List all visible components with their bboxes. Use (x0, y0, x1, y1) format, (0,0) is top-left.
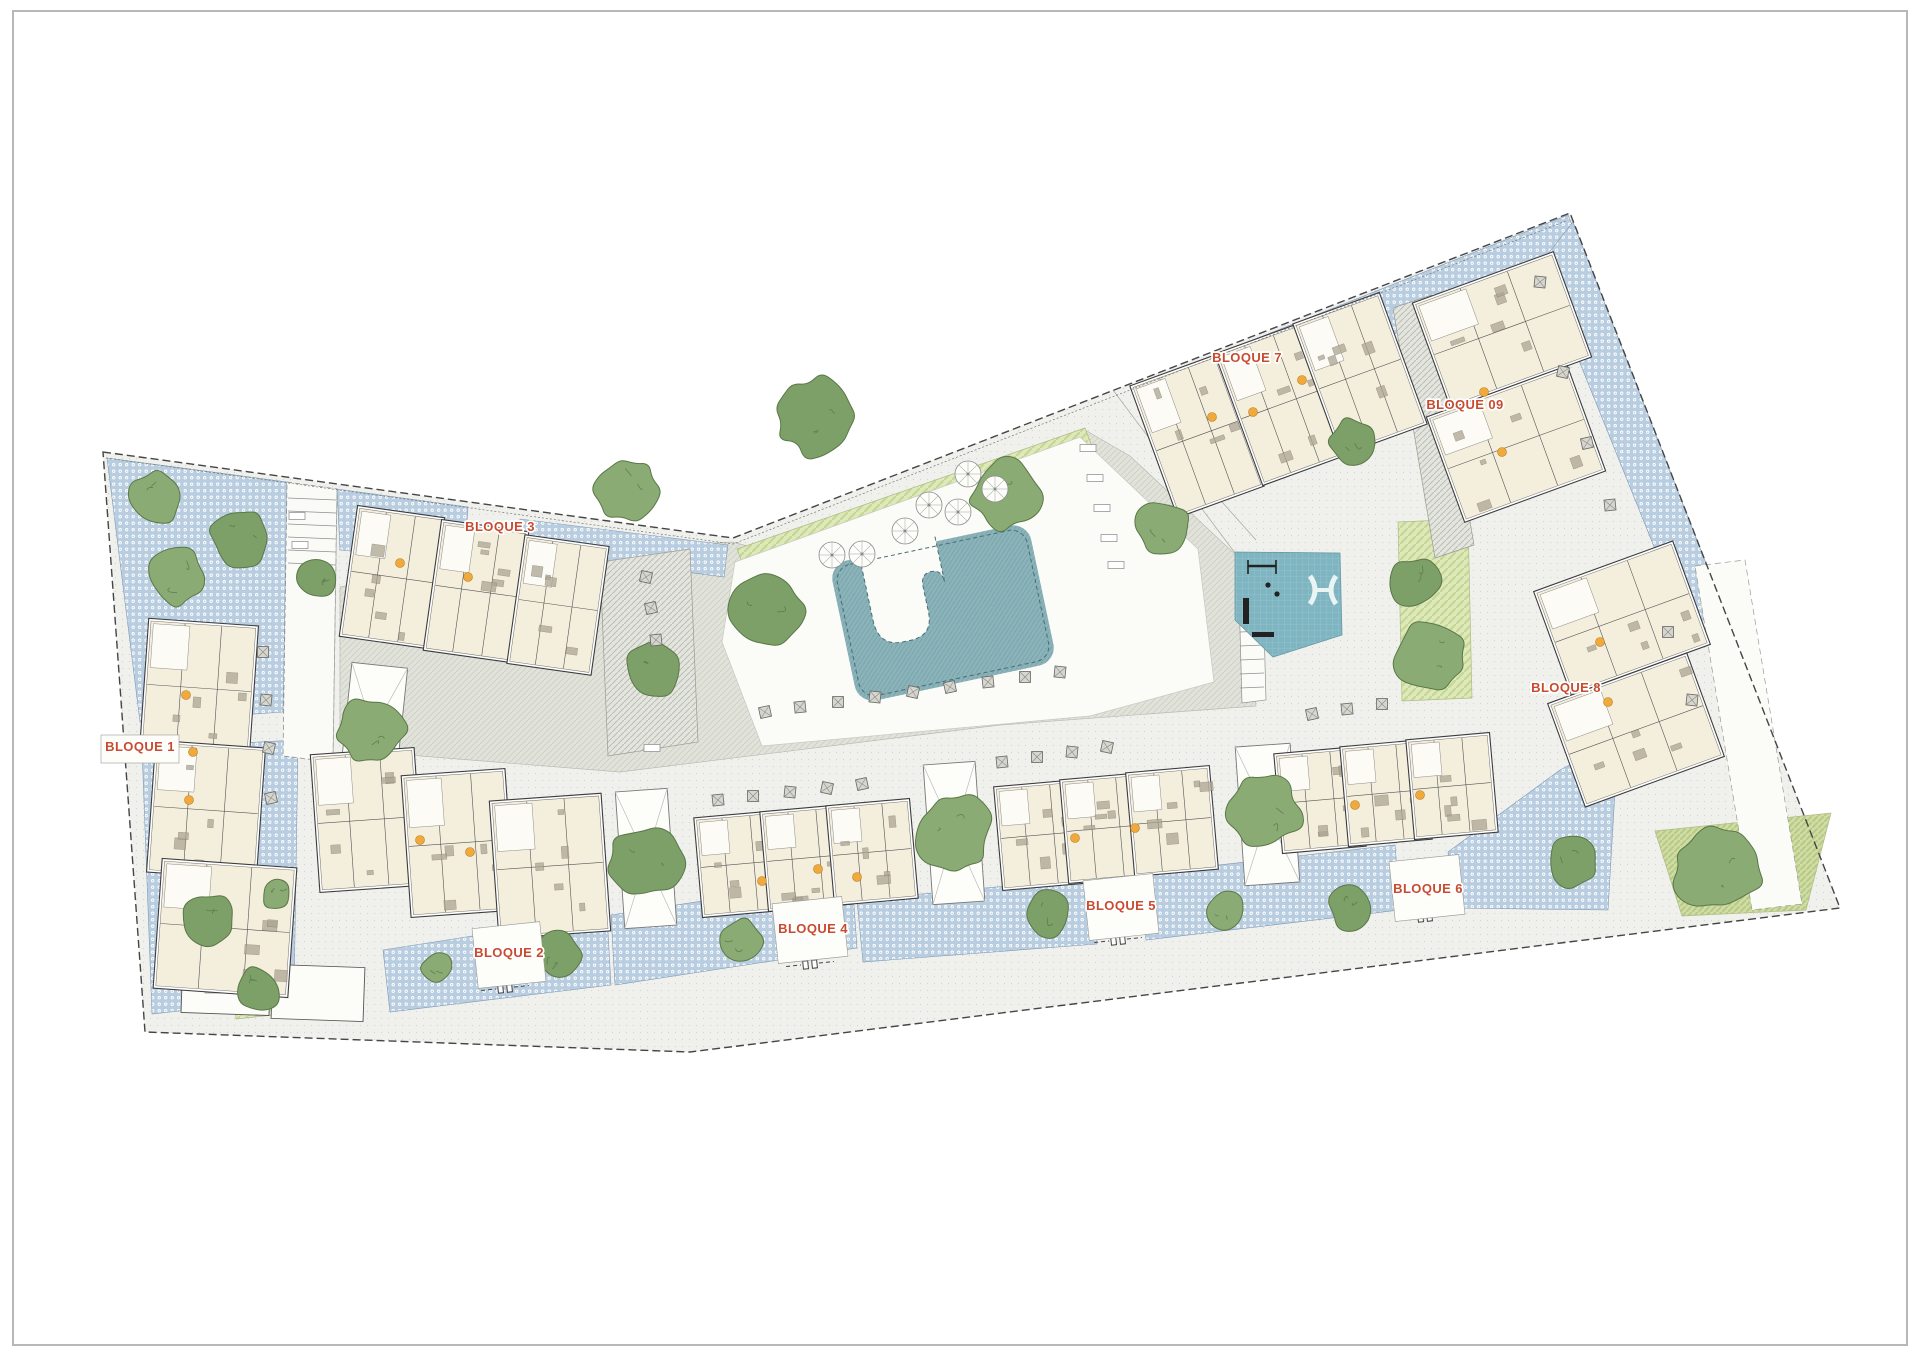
lounger-table (1032, 752, 1043, 763)
entry-marker (189, 748, 198, 757)
lounger-table (1305, 707, 1318, 720)
furniture (1040, 857, 1051, 869)
lounger-table (784, 786, 796, 798)
bench (289, 513, 305, 520)
furniture (444, 900, 457, 910)
parasol-pole (928, 504, 931, 507)
gate-post (812, 960, 818, 968)
lounger-table (943, 680, 956, 693)
furniture (730, 880, 739, 887)
furniture (331, 845, 341, 854)
room (699, 820, 730, 856)
furniture (1147, 819, 1162, 829)
parasol (955, 461, 981, 487)
tree-canopy (777, 375, 855, 459)
entry-marker (1604, 698, 1613, 707)
furniture (1395, 810, 1406, 821)
room (1131, 775, 1162, 812)
furniture (226, 672, 238, 683)
building-unit (489, 793, 610, 938)
entry-marker (182, 691, 191, 700)
lounger-table (748, 791, 759, 802)
furniture (889, 816, 897, 828)
entry-marker (1480, 388, 1489, 397)
lounger-table (1604, 499, 1616, 511)
page: BLOQUE 1 BLOQUE 2 BLOQUE 3 BLOQUE 4 BLOQ… (0, 0, 1920, 1356)
parasol (892, 518, 918, 544)
furniture (579, 903, 585, 911)
lounger-table (906, 685, 919, 698)
room (150, 624, 190, 670)
bench (1101, 535, 1117, 542)
bloque-6-label: BLOQUE 6 (1393, 881, 1463, 896)
entry-marker (466, 848, 475, 857)
furniture (545, 577, 557, 587)
furniture (884, 871, 890, 876)
furniture (1043, 809, 1053, 818)
entry-marker (396, 559, 405, 568)
parasol (982, 476, 1008, 502)
furniture (398, 632, 405, 641)
furniture (267, 920, 277, 928)
furniture (781, 892, 795, 900)
building-unit (826, 799, 918, 906)
parasol-pole (994, 488, 997, 491)
parasol-pole (831, 554, 834, 557)
bloque-7-label: BLOQUE 7 (1212, 350, 1282, 365)
furniture (367, 870, 374, 875)
lounger-table (1066, 746, 1078, 758)
entry-marker (814, 865, 823, 874)
building-unit (1126, 765, 1221, 876)
furniture (1199, 781, 1213, 791)
furniture (877, 875, 891, 885)
lounger-table (258, 647, 269, 658)
lounger-table (982, 676, 994, 688)
furniture (531, 565, 543, 577)
lounger-table (260, 694, 272, 706)
entry-marker (1249, 408, 1258, 417)
parasol (916, 492, 942, 518)
furniture (244, 944, 259, 955)
lounger-table (758, 705, 771, 718)
furniture (1361, 827, 1369, 837)
furniture (274, 970, 288, 982)
gate-post (803, 961, 809, 969)
bloque-2-label: BLOQUE 2 (474, 945, 544, 960)
bench (1094, 505, 1110, 512)
lounger-table (1686, 694, 1698, 706)
furniture (480, 844, 487, 854)
furniture (209, 733, 217, 738)
furniture (375, 612, 387, 620)
lounger-table (712, 794, 724, 806)
lounger-table (1341, 703, 1353, 715)
bench (644, 745, 660, 752)
room (765, 814, 796, 850)
lounger-table (1556, 365, 1569, 378)
bloque-1-label: BLOQUE 1 (105, 739, 175, 754)
spring-toy (1274, 591, 1279, 596)
furniture (714, 862, 721, 867)
furniture (238, 693, 246, 701)
parasol (945, 499, 971, 525)
entry-marker (1208, 413, 1217, 422)
room (316, 757, 354, 805)
furniture (561, 846, 569, 858)
bloque-3-label: BLOQUE 3 (465, 519, 535, 534)
furniture (173, 715, 180, 722)
parasol-pole (957, 511, 960, 514)
parasol-pole (904, 530, 907, 533)
lounger-table (1020, 672, 1031, 683)
entry-marker (1071, 834, 1080, 843)
parasol-pole (967, 473, 970, 476)
furniture (566, 647, 578, 655)
furniture (480, 550, 489, 555)
tree-canopy (608, 828, 686, 894)
furniture (862, 848, 869, 859)
furniture (554, 884, 563, 891)
building-unit (507, 535, 609, 676)
lounger-table (1534, 276, 1546, 288)
room (407, 778, 445, 828)
entry-marker (1498, 448, 1507, 457)
building-unit (1406, 733, 1498, 840)
entry-marker (758, 877, 767, 886)
furniture (535, 863, 544, 871)
furniture (1095, 814, 1107, 819)
lounger-table (820, 781, 833, 794)
furniture (1374, 795, 1389, 807)
entry-marker (1351, 801, 1360, 810)
furniture (841, 841, 850, 846)
furniture (1472, 819, 1487, 830)
furniture (1016, 839, 1028, 846)
lounger-table (996, 756, 1008, 768)
bench (1087, 475, 1103, 482)
bloque-4-label: BLOQUE 4 (778, 921, 848, 936)
furniture (207, 819, 213, 828)
furniture (432, 854, 447, 860)
room (1345, 749, 1376, 785)
lounger-table (1580, 436, 1593, 449)
furniture (1084, 825, 1095, 830)
bloque-8-label: BLOQUE 8 (1531, 680, 1601, 695)
lounger-table (639, 570, 652, 583)
lounger-table (1663, 627, 1674, 638)
entry-marker (1596, 638, 1605, 647)
furniture (481, 581, 497, 592)
room (495, 803, 535, 851)
bench (292, 542, 308, 549)
entry-marker (853, 873, 862, 882)
entry-marker (1131, 824, 1140, 833)
furniture (365, 588, 375, 597)
lounger-table (1377, 699, 1388, 710)
furniture (1447, 814, 1460, 821)
furniture (1440, 775, 1451, 782)
furniture (1097, 801, 1110, 810)
furniture (812, 888, 820, 893)
site-plan-drawing: BLOQUE 1 BLOQUE 2 BLOQUE 3 BLOQUE 4 BLOQ… (0, 0, 1920, 1356)
furniture (1194, 781, 1200, 787)
furniture (372, 575, 381, 584)
room (831, 808, 862, 844)
parasol-pole (861, 553, 864, 556)
tree-canopy (264, 879, 289, 908)
lounger-table (1100, 740, 1113, 753)
furniture (326, 809, 340, 815)
furniture (186, 765, 193, 770)
entry-marker (464, 573, 473, 582)
furniture (1108, 810, 1116, 818)
room (1065, 782, 1096, 819)
bench (1108, 562, 1124, 569)
lounger-table (794, 701, 806, 713)
entry-marker (416, 836, 425, 845)
furniture (1318, 825, 1328, 837)
furniture (1167, 802, 1177, 809)
lounger-table (833, 697, 844, 708)
lounger-table (869, 691, 881, 703)
furniture (1166, 833, 1179, 845)
parasol (849, 541, 875, 567)
furniture (371, 544, 386, 557)
bench (1080, 445, 1096, 452)
lounger-table (1054, 666, 1066, 678)
room (1411, 742, 1442, 778)
furniture (178, 832, 189, 840)
slide (1243, 598, 1249, 624)
entry-marker (185, 796, 194, 805)
lounger-table (855, 777, 868, 790)
furniture (193, 697, 201, 708)
play-bench (1252, 632, 1274, 637)
bloque-9-label: BLOQUE 09 (1426, 397, 1503, 412)
room (999, 789, 1030, 826)
entry-marker (1298, 376, 1307, 385)
furniture (729, 887, 741, 899)
furniture (381, 777, 395, 784)
bloque-5-label: BLOQUE 5 (1086, 898, 1156, 913)
furniture (558, 809, 564, 814)
lounger-table (650, 634, 662, 646)
parasol (819, 542, 845, 568)
spring-toy (1265, 582, 1270, 587)
lounger-table (264, 791, 277, 804)
lounger-table (262, 741, 275, 754)
lounger-table (644, 601, 657, 614)
entry-marker (1416, 791, 1425, 800)
furniture (1451, 797, 1458, 806)
